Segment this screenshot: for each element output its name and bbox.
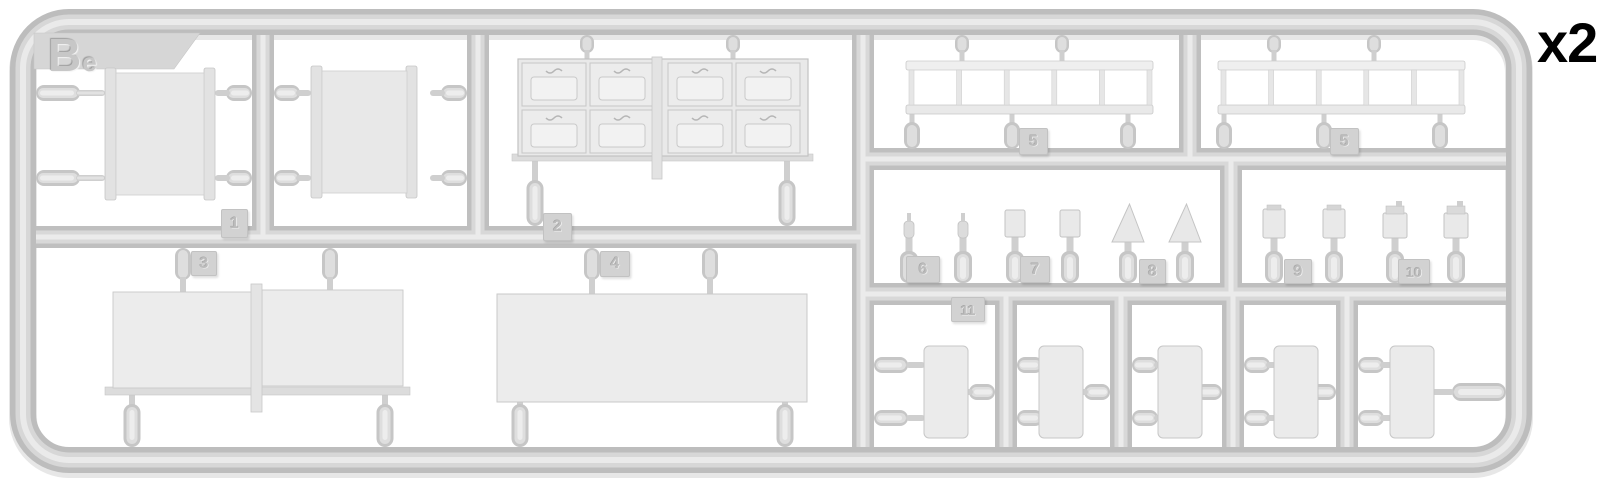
- part-number-tag-4: 4: [600, 251, 630, 277]
- part-number-tag-5b: 5: [1330, 128, 1359, 155]
- part-number-tag-1: 1: [221, 209, 248, 238]
- part-number-tag-9: 9: [1284, 259, 1312, 284]
- part-11-rectangles: [874, 346, 1506, 438]
- part-number-tag-8: 8: [1139, 259, 1166, 284]
- sprue-frame: [0, 0, 1609, 503]
- parts-6-to-10: [900, 201, 1468, 283]
- part-number-tag-11: 11: [951, 297, 985, 322]
- part-number-tag-7: 7: [1020, 256, 1050, 283]
- part-number-tag-2: 2: [543, 213, 572, 241]
- part-2-cabinet: [512, 35, 813, 226]
- part-4-panel: [497, 248, 807, 447]
- quantity-label: x2: [1537, 10, 1597, 75]
- part-number-tag-5a: 5: [1019, 128, 1048, 155]
- sprue-photo: Be 1 2 3 4 5 5 6 7 8 9 10 11 x2: [0, 0, 1609, 503]
- part-number-tag-3: 3: [191, 251, 217, 276]
- part-number-tag-10: 10: [1398, 259, 1430, 284]
- part-number-tag-6: 6: [906, 256, 940, 283]
- sprue-letter: Be: [48, 28, 188, 82]
- part-3-panels: [105, 248, 410, 447]
- part-1-panels: [36, 66, 467, 200]
